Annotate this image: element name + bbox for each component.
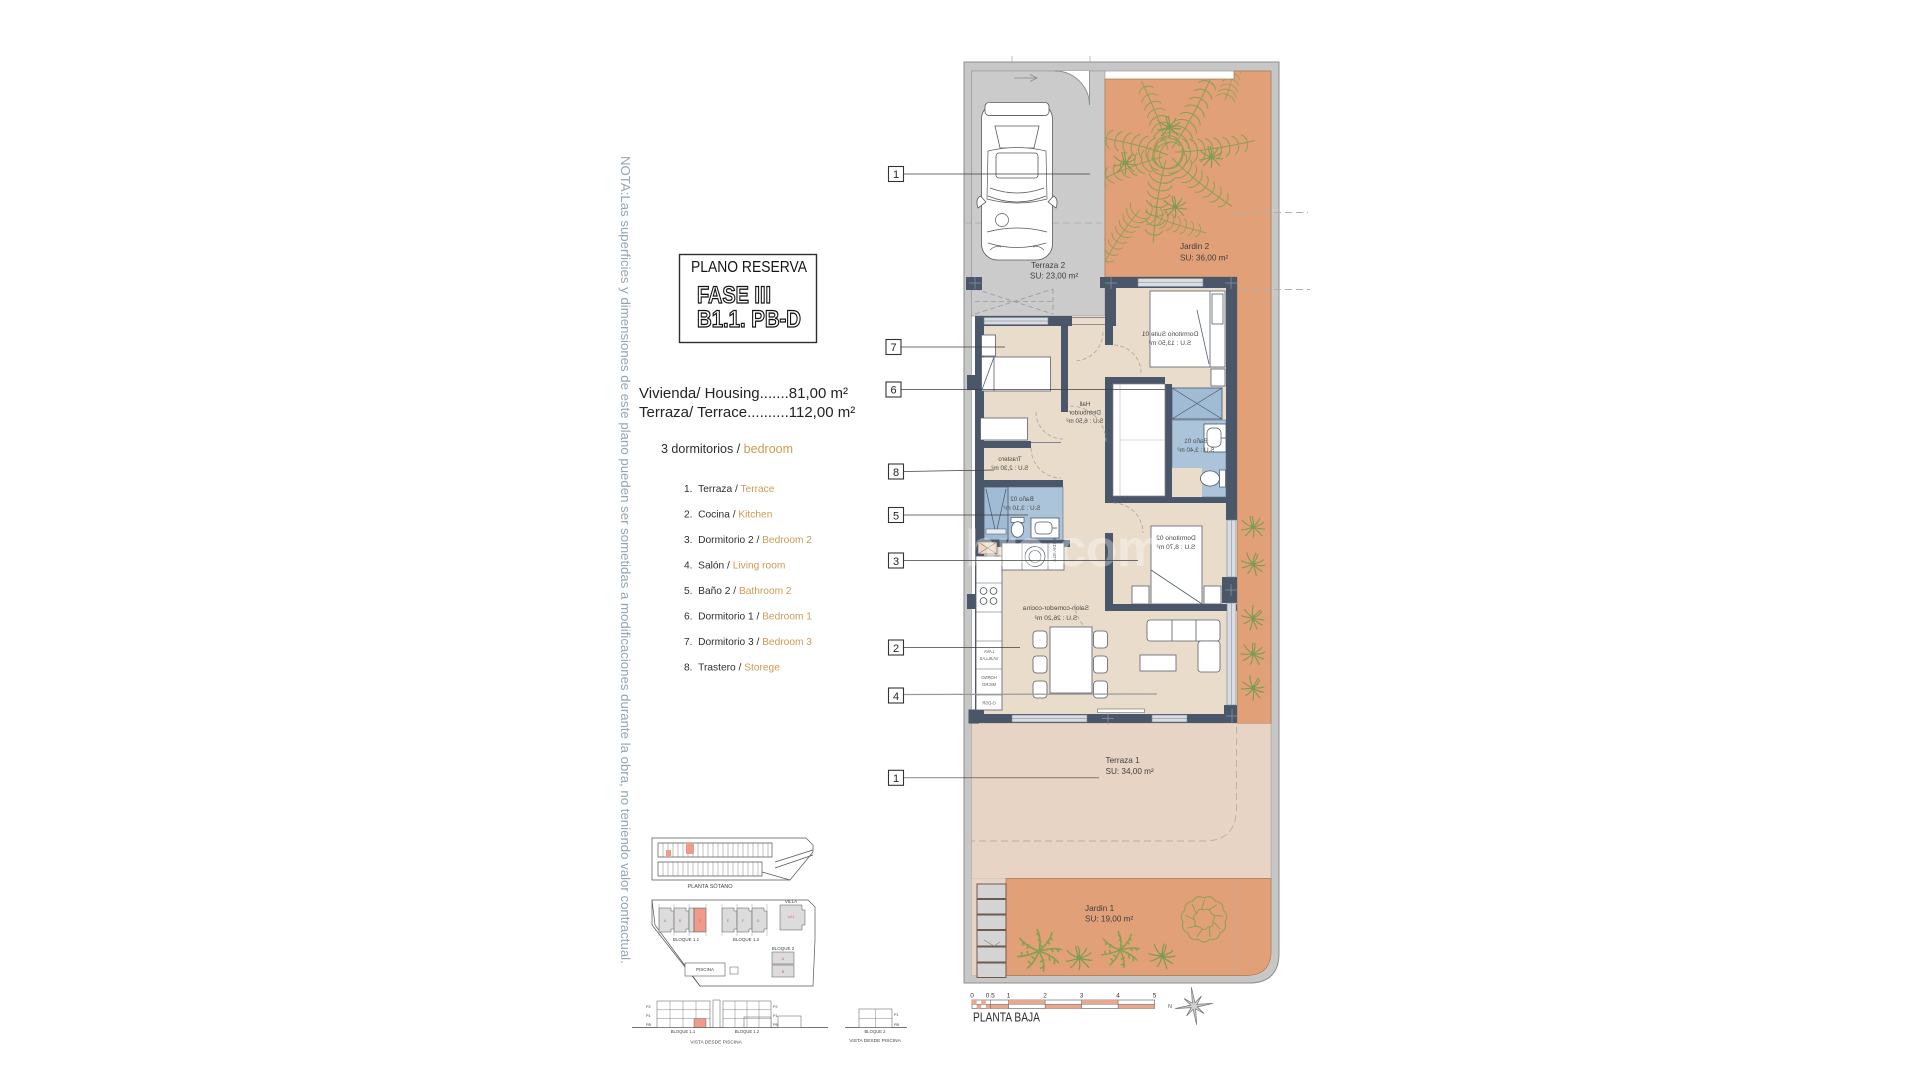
svg-text:S.U : 6,50 m²: S.U : 6,50 m² [1066,418,1103,425]
svg-text:P2: P2 [773,1005,778,1009]
svg-text:1: 1 [893,169,899,181]
svg-text:G: G [757,919,760,923]
svg-text:Terraza/ Terrace..........112,: Terraza/ Terrace..........112,00 m² [639,404,855,421]
svg-text:PB: PB [773,1023,779,1027]
svg-text:N: N [1168,1004,1172,1010]
svg-text:BLOQUE 2: BLOQUE 2 [772,946,795,951]
svg-text:Baño 02: Baño 02 [1010,496,1034,503]
svg-text:BLOQUE 2: BLOQUE 2 [865,1029,887,1034]
svg-text:brc.com: brc.com [965,520,1163,578]
svg-text:S.U : 3,40 m²: S.U : 3,40 m² [1177,447,1214,454]
svg-text:S.U : 13,50 m²: S.U : 13,50 m² [1148,340,1191,347]
svg-text:PLANTA SÓTANO: PLANTA SÓTANO [687,883,733,890]
svg-text:P1: P1 [773,1014,778,1018]
svg-text:Terraza 2: Terraza 2 [1031,261,1066,270]
svg-text:3: 3 [893,556,899,568]
svg-text:VAJILLAS: VAJILLAS [979,656,998,661]
svg-text:BLOQUE 1.1: BLOQUE 1.1 [673,937,700,942]
svg-text:2. Cocina / Kitchen: 2. Cocina / Kitchen [684,510,772,521]
svg-text:3. Dormitorio 2 / Bedroom 2: 3. Dormitorio 2 / Bedroom 2 [684,535,812,546]
svg-text:0: 0 [970,993,974,1000]
svg-text:3 dormitorios / bedroom: 3 dormitorios / bedroom [661,442,793,456]
svg-text:v.01: v.01 [788,915,795,919]
svg-text:4: 4 [893,691,899,703]
svg-text:7. Dormitorio 3 / Bedroom 3: 7. Dormitorio 3 / Bedroom 3 [684,637,812,648]
svg-text:SU: 34,00 m²: SU: 34,00 m² [1106,767,1155,776]
svg-text:2: 2 [1043,993,1047,1000]
svg-text:MICRO: MICRO [981,682,996,687]
svg-text:SU: 19,00 m²: SU: 19,00 m² [1085,915,1134,924]
svg-text:Jardin 1: Jardin 1 [1085,904,1115,913]
svg-text:Salon-comedor-cocina: Salon-comedor-cocina [1023,605,1089,612]
svg-text:8. Trastero / Storege: 8. Trastero / Storege [684,663,780,674]
svg-text:P2: P2 [646,1005,651,1009]
svg-text:NOTA:Las superficies y dimensi: NOTA:Las superficies y dimensiones de es… [618,156,633,964]
svg-text:1: 1 [893,773,899,785]
svg-text:5: 5 [893,510,899,522]
svg-text:8: 8 [893,467,899,479]
svg-text:P1: P1 [646,1014,651,1018]
svg-text:O-DSR: O-DSR [982,701,996,706]
svg-text:LAVA: LAVA [984,649,994,654]
svg-text:PISCINA: PISCINA [696,967,714,972]
svg-text:PLANTA BAJA: PLANTA BAJA [973,1011,1041,1025]
svg-text:S.U : 8,70 m²: S.U : 8,70 m² [1156,544,1196,551]
svg-text:Vivienda/ Housing.......81,00: Vivienda/ Housing.......81,00 m² [639,385,848,402]
svg-text:3: 3 [1080,993,1084,1000]
svg-text:C: C [699,919,702,923]
svg-text:1. Terraza / Terrace: 1. Terraza / Terrace [684,484,775,495]
svg-text:BLOQUE 1.1: BLOQUE 1.1 [671,1029,696,1034]
svg-text:Trastero: Trastero [998,456,1022,463]
svg-text:BLOQUE 1.2: BLOQUE 1.2 [733,937,760,942]
svg-text:1: 1 [1007,993,1011,1000]
svg-text:2: 2 [893,643,899,655]
svg-text:S.U : 3,10 m²: S.U : 3,10 m² [1003,505,1040,512]
svg-text:Baño 01: Baño 01 [1184,438,1208,445]
svg-text:HORNO: HORNO [980,675,996,680]
svg-text:5: 5 [1153,993,1157,1000]
svg-text:PB: PB [894,1023,900,1027]
svg-text:Jardin 2: Jardin 2 [1180,242,1210,251]
svg-text:6. Dormitorio 1 / Bedroom 1: 6. Dormitorio 1 / Bedroom 1 [684,612,812,623]
svg-text:Dormitorio 02: Dormitorio 02 [1156,535,1196,542]
svg-text:B1.1. PB-D: B1.1. PB-D [697,306,801,333]
svg-text:PLANO RESERVA: PLANO RESERVA [691,259,808,276]
svg-text:Distribuidor: Distribuidor [1069,410,1101,417]
svg-text:S.U : 2,30 m²: S.U : 2,30 m² [991,465,1028,472]
svg-text:4. Salón / Living room: 4. Salón / Living room [684,561,785,572]
svg-text:0.5: 0.5 [986,993,995,1000]
svg-text:P1: P1 [894,1013,899,1017]
svg-text:VISTA DESDE PISCINA: VISTA DESDE PISCINA [849,1038,901,1044]
svg-text:4: 4 [1116,993,1120,1000]
svg-text:5. Baño 2 / Bathroom 2: 5. Baño 2 / Bathroom 2 [684,586,792,597]
svg-text:Terraza 1: Terraza 1 [1106,756,1141,765]
svg-text:S.U : 26,20 m²: S.U : 26,20 m² [1034,615,1077,622]
svg-text:FASE III: FASE III [697,282,771,309]
svg-text:SU: 23,00 m²: SU: 23,00 m² [1030,272,1079,281]
svg-text:Hall: Hall [1080,401,1091,408]
svg-text:7: 7 [890,342,896,354]
svg-text:SU: 36,00 m²: SU: 36,00 m² [1180,254,1229,263]
svg-text:6: 6 [890,385,896,397]
svg-text:VISTA DESDE PISCINA: VISTA DESDE PISCINA [690,1040,742,1046]
svg-text:BLOQUE 1.2: BLOQUE 1.2 [735,1029,760,1034]
svg-text:PB: PB [646,1023,652,1027]
svg-text:VILLA: VILLA [785,899,797,904]
svg-text:Dormitorio Suite 01: Dormitorio Suite 01 [1141,331,1198,338]
